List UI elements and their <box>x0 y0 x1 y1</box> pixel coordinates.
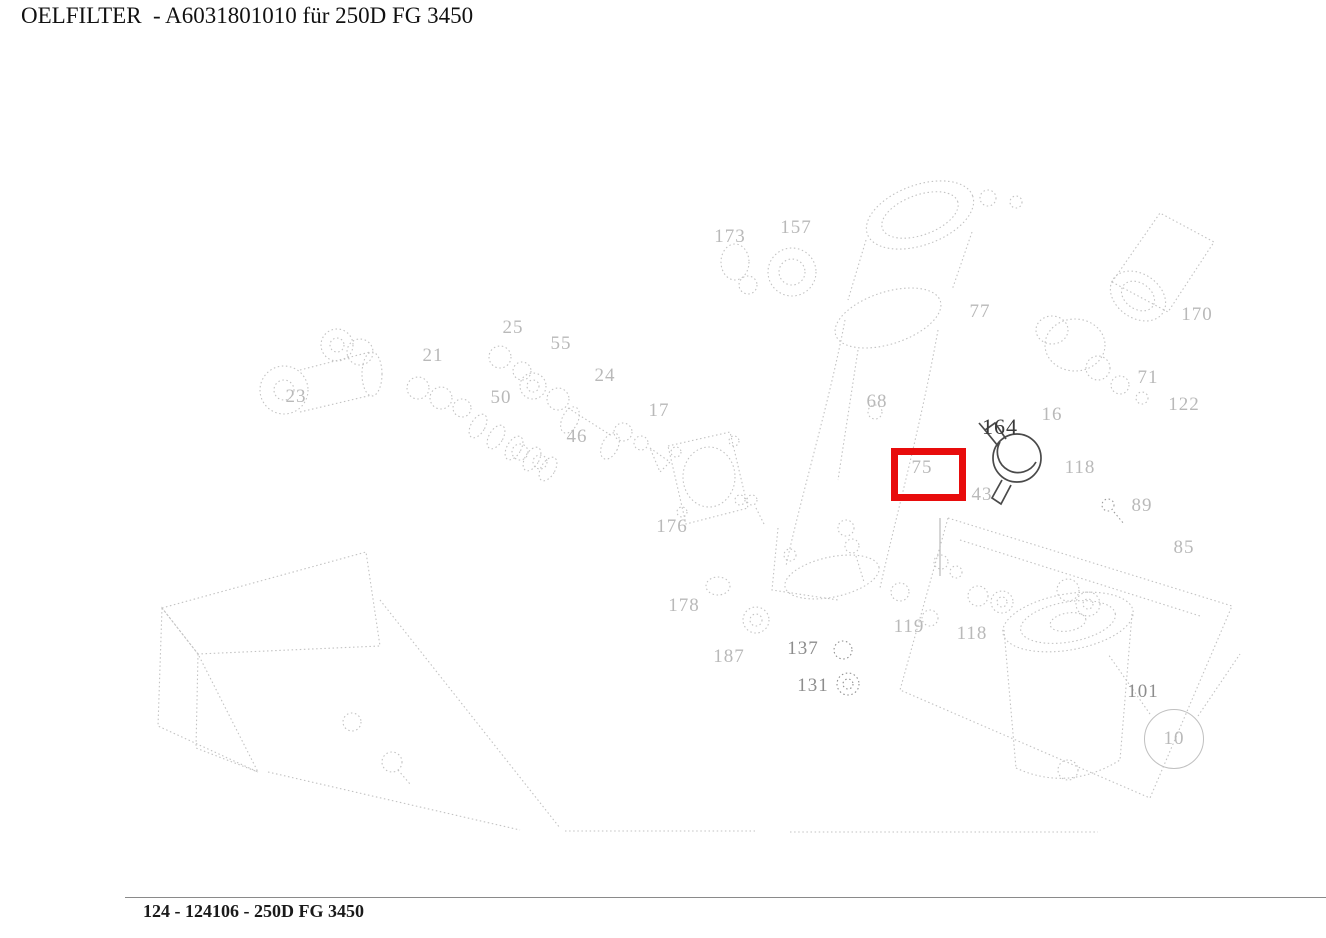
part-label-50[interactable]: 50 <box>491 387 512 409</box>
part-label-23[interactable]: 23 <box>286 386 307 408</box>
part-label-68[interactable]: 68 <box>867 391 888 413</box>
label-layer: 1731577717071122161641188985232125555024… <box>0 0 1326 938</box>
part-label-17[interactable]: 17 <box>649 400 670 422</box>
part-label-119[interactable]: 119 <box>894 616 925 638</box>
part-label-164[interactable]: 164 <box>982 414 1018 440</box>
part-label-71[interactable]: 71 <box>1138 367 1159 389</box>
part-label-131[interactable]: 131 <box>797 675 829 697</box>
part-label-170[interactable]: 170 <box>1181 304 1213 326</box>
highlight-box <box>891 448 966 501</box>
part-label-46[interactable]: 46 <box>567 426 588 448</box>
part-label-55[interactable]: 55 <box>551 333 572 355</box>
part-label-157[interactable]: 157 <box>780 217 812 239</box>
part-label-176[interactable]: 176 <box>656 516 688 538</box>
part-label-137[interactable]: 137 <box>787 638 819 660</box>
footer-caption: 124 - 124106 - 250D FG 3450 <box>143 901 364 922</box>
part-label-24[interactable]: 24 <box>595 365 616 387</box>
footer-divider <box>125 897 1326 898</box>
part-label-85[interactable]: 85 <box>1174 537 1195 559</box>
part-label-118[interactable]: 118 <box>1065 457 1096 479</box>
part-label-21[interactable]: 21 <box>423 345 444 367</box>
part-label-10[interactable]: 10 <box>1144 709 1204 769</box>
part-label-43[interactable]: 43 <box>972 484 993 506</box>
part-label-89[interactable]: 89 <box>1132 495 1153 517</box>
part-label-122[interactable]: 122 <box>1168 394 1200 416</box>
part-label-187[interactable]: 187 <box>713 646 745 668</box>
parts-diagram: 1731577717071122161641188985232125555024… <box>0 0 1326 938</box>
part-label-25[interactable]: 25 <box>503 317 524 339</box>
part-label-118[interactable]: 118 <box>957 623 988 645</box>
part-label-77[interactable]: 77 <box>970 301 991 323</box>
part-label-101[interactable]: 101 <box>1127 681 1159 703</box>
part-label-16[interactable]: 16 <box>1042 404 1063 426</box>
part-label-173[interactable]: 173 <box>714 226 746 248</box>
part-label-178[interactable]: 178 <box>668 595 700 617</box>
